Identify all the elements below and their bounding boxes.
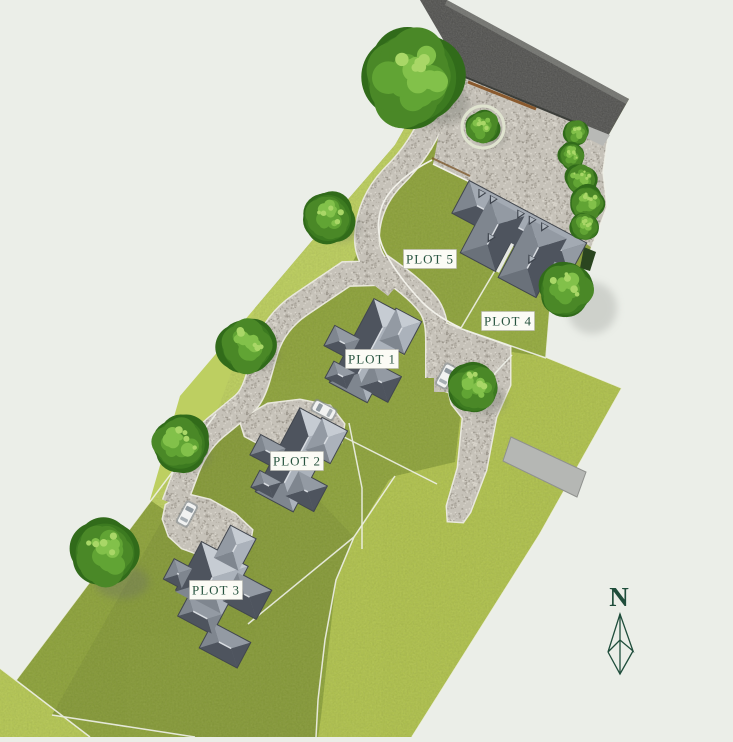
svg-text:PLOT 4: PLOT 4 (484, 314, 532, 329)
svg-text:PLOT 5: PLOT 5 (406, 252, 454, 267)
svg-text:PLOT 3: PLOT 3 (192, 583, 240, 598)
svg-text:PLOT 2: PLOT 2 (273, 454, 321, 469)
svg-text:N: N (609, 582, 629, 612)
svg-text:PLOT 1: PLOT 1 (348, 352, 396, 367)
